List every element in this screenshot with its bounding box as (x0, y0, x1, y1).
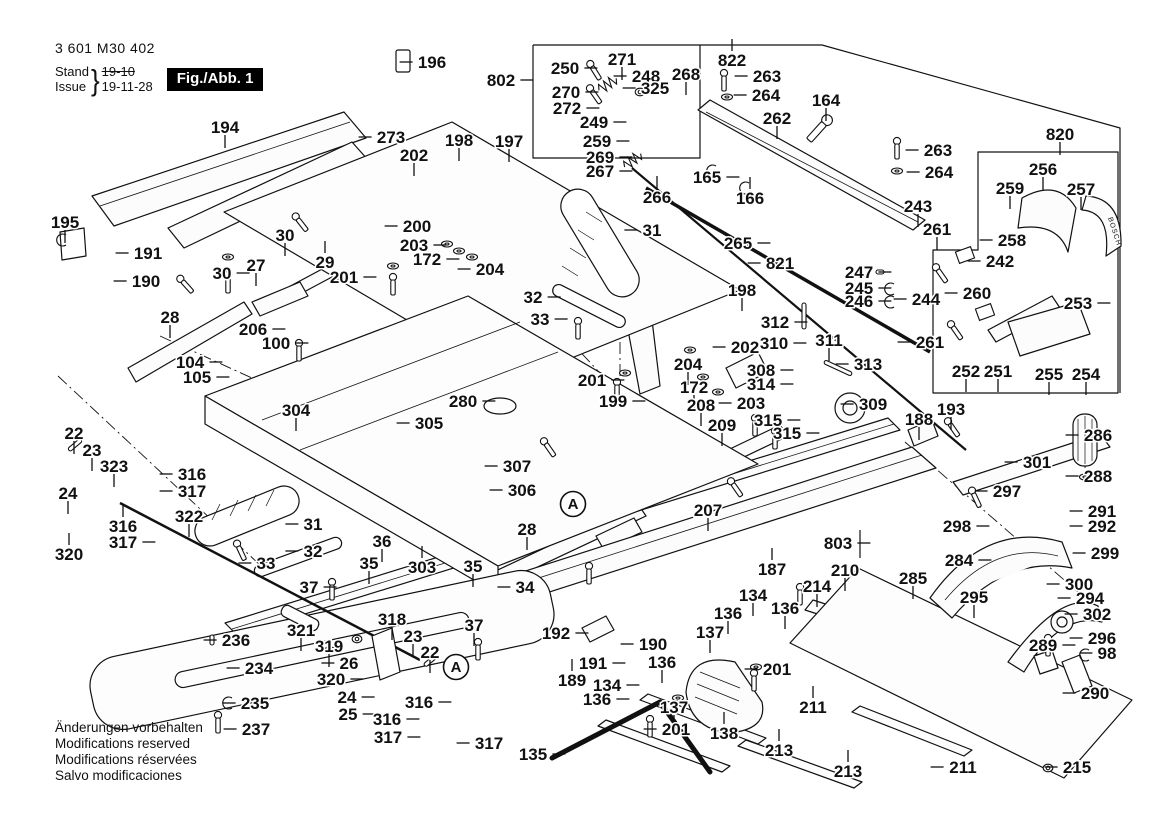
part-label-198: 198 (445, 131, 473, 150)
part-label-193: 193 (937, 400, 965, 419)
part-label-192: 192 (542, 624, 570, 643)
clip-195 (60, 228, 86, 260)
part-label-98: 98 (1098, 644, 1117, 663)
part-label-211: 211 (799, 698, 826, 717)
part-label-137: 137 (696, 623, 724, 642)
part-label-263: 263 (924, 141, 952, 160)
part-label-135: 135 (519, 745, 547, 764)
part-label-316: 316 (405, 693, 433, 712)
screw-icon (585, 59, 603, 81)
part-label-266: 266 (643, 188, 671, 207)
part-label-317: 317 (109, 533, 137, 552)
part-label-204: 204 (476, 260, 505, 279)
washer-icon (713, 389, 724, 395)
part-label-250: 250 (551, 59, 579, 78)
part-label-290: 290 (1081, 684, 1109, 703)
part-label-201: 201 (330, 268, 358, 287)
part-label-315: 315 (773, 424, 801, 443)
part-label-317: 317 (475, 734, 503, 753)
part-label-285: 285 (899, 569, 927, 588)
part-label-209: 209 (708, 416, 736, 435)
issue-date: 19-11-28 (102, 79, 153, 94)
part-label-138: 138 (710, 724, 738, 743)
part-label-802: 802 (487, 71, 515, 90)
part-label-284: 284 (945, 551, 974, 570)
screw-icon (214, 711, 221, 733)
part-label-311: 311 (815, 331, 842, 350)
part-label-295: 295 (960, 588, 988, 607)
nut-icon (352, 635, 362, 643)
part-label-35: 35 (464, 557, 483, 576)
part-label-201: 201 (763, 660, 791, 679)
part-label-32: 32 (524, 288, 543, 307)
part-label-165: 165 (693, 168, 721, 187)
part-label-136: 136 (583, 690, 611, 709)
part-label-213: 213 (765, 741, 793, 760)
part-label-307: 307 (503, 457, 531, 476)
assembly-marker-A: A (444, 655, 469, 680)
screw-icon (720, 69, 727, 91)
fence-262 (698, 100, 925, 230)
part-label-190: 190 (639, 635, 667, 654)
guard-256 (1018, 190, 1076, 252)
part-label-252: 252 (952, 362, 980, 381)
part-label-242: 242 (986, 252, 1014, 271)
part-label-264: 264 (752, 86, 781, 105)
part-label-35: 35 (360, 554, 379, 573)
part-label-821: 821 (766, 254, 794, 273)
part-label-323: 323 (100, 457, 128, 476)
screw-icon (389, 273, 396, 295)
part-label-204: 204 (674, 355, 703, 374)
part-label-196: 196 (418, 53, 446, 72)
part-label-194: 194 (211, 118, 240, 137)
part-label-164: 164 (812, 91, 841, 110)
date-column: 19-10 19-11-28 (102, 65, 153, 95)
part-label-265: 265 (724, 234, 752, 253)
part-label-261: 261 (916, 333, 944, 352)
part-label-314: 314 (747, 375, 776, 394)
washer-icon (442, 241, 453, 247)
part-label-263: 263 (753, 67, 781, 86)
part-label-320: 320 (317, 670, 345, 689)
part-label-268: 268 (672, 65, 700, 84)
clip-icon (1080, 649, 1089, 661)
screw-icon (175, 274, 195, 295)
part-label-280: 280 (449, 392, 477, 411)
part-label-36: 36 (373, 532, 392, 551)
screw-icon (328, 578, 335, 600)
part-label-246: 246 (845, 292, 873, 311)
part-label-24: 24 (59, 484, 78, 503)
clip-icon (885, 296, 894, 308)
screw-icon (946, 319, 964, 341)
part-label-316: 316 (373, 710, 401, 729)
part-label-33: 33 (531, 310, 550, 329)
part-label-260: 260 (963, 284, 991, 303)
washer-icon (685, 347, 696, 353)
part-label-187: 187 (758, 560, 786, 579)
part-label-255: 255 (1035, 365, 1063, 384)
screw-icon (646, 715, 653, 737)
pin-icon (824, 360, 853, 376)
part-label-28: 28 (161, 308, 180, 327)
part-label-188: 188 (905, 410, 933, 429)
part-label-306: 306 (508, 481, 536, 500)
part-label-303: 303 (408, 558, 436, 577)
longscrew-icon (805, 113, 835, 144)
part-label-259: 259 (996, 179, 1024, 198)
part-label-203: 203 (737, 394, 765, 413)
part-label-318: 318 (378, 610, 406, 629)
part-label-30: 30 (213, 264, 232, 283)
screw-icon (474, 638, 481, 660)
part-label-134: 134 (739, 586, 768, 605)
part-label-299: 299 (1091, 544, 1119, 563)
part-label-199: 199 (599, 392, 627, 411)
part-label-235: 235 (241, 694, 269, 713)
part-label-272: 272 (553, 99, 581, 118)
part-label-297: 297 (993, 482, 1021, 501)
part-label-31: 31 (304, 515, 323, 534)
part-label-32: 32 (304, 542, 323, 561)
part-label-22: 22 (65, 424, 84, 443)
part-label-34: 34 (516, 578, 535, 597)
part-label-27: 27 (247, 256, 266, 275)
part-label-302: 302 (1083, 605, 1111, 624)
part-label-273: 273 (377, 128, 405, 147)
part-label-195: 195 (51, 213, 79, 232)
brace-glyph: } (91, 61, 100, 98)
part-label-234: 234 (245, 659, 274, 678)
part-label-322: 322 (175, 507, 203, 526)
part-label-33: 33 (257, 554, 276, 573)
part-label-264: 264 (925, 163, 954, 182)
screw-icon (893, 137, 900, 159)
part-label-286: 286 (1084, 426, 1112, 445)
part-label-325: 325 (641, 79, 669, 98)
part-label-213: 213 (834, 762, 862, 781)
part-label-317: 317 (178, 482, 206, 501)
plate-27-upper (252, 282, 308, 316)
part-label-197: 197 (495, 132, 523, 151)
pin-icon (802, 303, 806, 329)
figure-label: Fig./Abb. 1 (167, 68, 264, 91)
part-label-251: 251 (984, 362, 1012, 381)
stand-label: Stand (55, 64, 89, 79)
part-label-262: 262 (763, 109, 791, 128)
part-label-28: 28 (518, 520, 537, 539)
part-label-25: 25 (339, 705, 358, 724)
issue-label: Issue (55, 79, 86, 94)
parts-diagram-page: 1968022502712482688222632642702723252492… (0, 0, 1169, 826)
part-label-136: 136 (648, 653, 676, 672)
nut-icon (1043, 764, 1053, 772)
part-label-310: 310 (760, 334, 788, 353)
washer-icon (620, 370, 631, 376)
block-icon (975, 304, 994, 321)
part-label-166: 166 (736, 189, 764, 208)
part-label-100: 100 (262, 334, 290, 353)
bracket-192 (582, 616, 614, 642)
legal-line-en: Modifications reserved (55, 736, 203, 752)
part-label-803: 803 (824, 534, 852, 553)
part-label-201: 201 (662, 720, 690, 739)
part-label-202: 202 (400, 146, 428, 165)
legal-line-fr: Modifications réservées (55, 752, 203, 768)
part-label-22: 22 (421, 643, 440, 662)
part-label-256: 256 (1029, 160, 1057, 179)
assembly-marker-A: A (561, 492, 586, 517)
part-label-172: 172 (413, 250, 441, 269)
part-label-298: 298 (943, 517, 971, 536)
part-label-261: 261 (923, 220, 951, 239)
part-label-822: 822 (718, 51, 746, 70)
part-label-254: 254 (1072, 365, 1101, 384)
part-label-202: 202 (731, 338, 759, 357)
part-label-249: 249 (580, 113, 608, 132)
spring-icon (621, 150, 644, 171)
part-label-257: 257 (1067, 180, 1095, 199)
part-number: 3 601 M30 402 (55, 40, 263, 58)
part-label-253: 253 (1064, 294, 1092, 313)
svg-text:A: A (451, 659, 462, 676)
part-label-320: 320 (55, 545, 83, 564)
part-label-313: 313 (854, 355, 882, 374)
part-label-136: 136 (771, 599, 799, 618)
part-label-23: 23 (83, 441, 102, 460)
part-label-236: 236 (222, 631, 250, 650)
screw-icon (574, 317, 581, 339)
part-label-820: 820 (1046, 125, 1074, 144)
part-label-288: 288 (1084, 467, 1112, 486)
part-label-258: 258 (998, 231, 1026, 250)
washer-icon (892, 168, 903, 174)
grip-31-left (190, 481, 303, 550)
washer-icon (722, 94, 733, 100)
part-label-243: 243 (904, 197, 932, 216)
part-label-37: 37 (465, 616, 484, 635)
part-label-211: 211 (949, 758, 976, 777)
part-label-267: 267 (586, 162, 614, 181)
part-label-136: 136 (714, 604, 742, 623)
part-label-31: 31 (643, 221, 662, 240)
part-label-309: 309 (859, 395, 887, 414)
part-label-37: 37 (300, 578, 319, 597)
part-label-214: 214 (803, 577, 832, 596)
part-label-172: 172 (680, 378, 708, 397)
part-label-190: 190 (132, 272, 160, 291)
washer-icon (454, 248, 465, 254)
part-label-215: 215 (1063, 758, 1091, 777)
legal-line-es: Salvo modificaciones (55, 768, 203, 784)
screw-icon (750, 669, 757, 691)
washer-icon (223, 254, 234, 260)
part-label-317: 317 (374, 728, 402, 747)
part-label-301: 301 (1023, 453, 1051, 472)
part-label-105: 105 (183, 368, 211, 387)
screw-icon (943, 416, 961, 438)
screw-icon (585, 562, 592, 584)
legal-notice: Änderungen vorbehalten Modifications res… (55, 720, 203, 784)
clip-icon (885, 283, 894, 295)
stand-issue-labels: Stand Issue (55, 65, 89, 95)
part-label-191: 191 (134, 244, 162, 263)
part-label-305: 305 (415, 414, 443, 433)
part-label-137: 137 (660, 698, 688, 717)
part-label-289: 289 (1029, 636, 1057, 655)
part-label-321: 321 (287, 621, 315, 640)
part-label-207: 207 (694, 501, 722, 520)
screw-icon (931, 262, 949, 284)
part-label-208: 208 (687, 396, 715, 415)
part-label-200: 200 (403, 217, 431, 236)
part-label-312: 312 (761, 313, 789, 332)
part-label-210: 210 (831, 561, 859, 580)
title-block: 3 601 M30 402 Stand Issue } 19-10 19-11-… (55, 40, 263, 96)
part-label-319: 319 (315, 637, 343, 656)
part-label-237: 237 (242, 720, 270, 739)
legal-line-de: Änderungen vorbehalten (55, 720, 203, 736)
part-label-189: 189 (558, 671, 586, 690)
washer-icon (388, 263, 399, 269)
screw-icon (232, 539, 248, 562)
part-label-292: 292 (1088, 517, 1116, 536)
hinge-196 (396, 50, 410, 72)
exploded-diagram: 1968022502712482688222632642702723252492… (0, 0, 1169, 826)
part-label-304: 304 (282, 401, 311, 420)
part-label-244: 244 (912, 290, 941, 309)
part-label-30: 30 (276, 226, 295, 245)
old-date: 19-10 (102, 64, 135, 79)
part-label-201: 201 (578, 371, 606, 390)
part-label-198: 198 (728, 281, 756, 300)
svg-text:A: A (568, 496, 579, 513)
